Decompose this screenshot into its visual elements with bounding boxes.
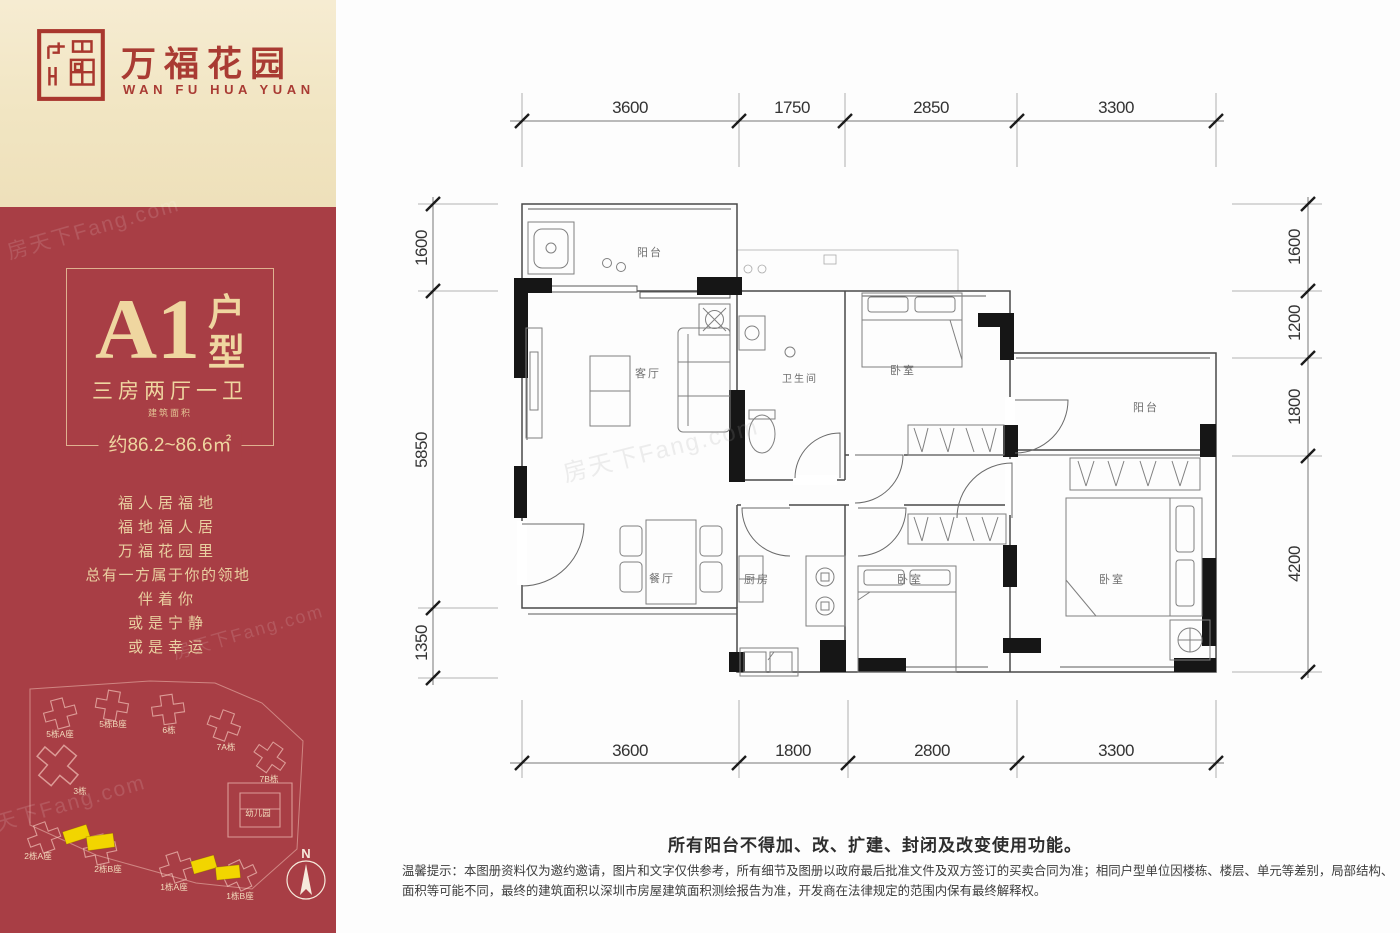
svg-text:2850: 2850 [913,98,949,117]
doors [522,400,1068,586]
brand-header: 万福花园 WAN FU HUA YUAN [0,0,336,207]
unit-layout: 三房两厅一卫 [67,375,273,405]
area-label: 建筑面积 [67,406,273,419]
area-value: 约86.2~86.6㎡ [98,430,241,457]
svg-text:1800: 1800 [775,741,811,760]
room-label-living: 客厅 [635,366,661,380]
washing-machine [528,222,574,274]
svg-text:3600: 3600 [612,98,648,117]
poem-line: 伴着你 [0,588,336,612]
balcony-notice: 所有阳台不得加、改、扩建、封闭及改变使用功能。 [400,831,1350,856]
poem-line: 福地福人居 [0,516,336,540]
disclaimer-text: 温馨提示：本图册资料仅为邀约邀请，图片和文字仅供参考，所有细节及图册以政府最后批… [402,862,1394,901]
brand-seal-icon [36,26,108,104]
bed-master [1066,498,1202,616]
sofa [678,328,730,432]
svg-text:1750: 1750 [774,98,810,117]
brand-name-en: WAN FU HUA YUAN [123,82,315,97]
site-buildings [24,688,292,895]
svg-text:幼儿园: 幼儿园 [245,808,271,818]
walls [522,204,1216,672]
wardrobe-master [1070,458,1200,490]
svg-text:4200: 4200 [1285,546,1304,582]
dimension-extension-lines [418,93,1322,778]
unit-type-box: A1 户 型 三房两厅一卫 建筑面积 约86.2~86.6㎡ [66,268,274,446]
svg-text:1350: 1350 [412,625,431,661]
svg-text:3栋: 3栋 [73,786,87,796]
unit-code: A1 [95,283,200,375]
svg-text:2栋B座: 2栋B座 [94,864,122,874]
svg-text:2800: 2800 [914,741,950,760]
unit-suffix: 户 型 [208,293,245,373]
unit-suffix-char-2: 型 [208,333,245,373]
svg-text:2栋A座: 2栋A座 [24,851,52,861]
svg-text:3300: 3300 [1098,741,1134,760]
svg-text:6栋: 6栋 [162,725,176,735]
room-label-kitchen: 厨房 [744,573,770,586]
room-label-dining: 餐厅 [649,571,675,585]
svg-text:5850: 5850 [412,432,431,468]
flyer-page: 万福花园 WAN FU HUA YUAN A1 户 型 三房两厅一卫 建筑面积 … [0,0,1400,933]
svg-text:5栋A座: 5栋A座 [46,729,74,739]
coffee-table [590,356,630,426]
tv-cabinet [526,328,542,438]
poem-line: 总有一方属于你的领地 [0,564,336,588]
compass-icon: N [287,846,325,899]
room-label-balcony-top: 阳台 [637,245,663,259]
dining-table [620,520,722,604]
structural-walls [514,277,1216,672]
wardrobe-top [908,425,1004,455]
bed-top [862,293,962,367]
svg-text:1栋B座: 1栋B座 [226,891,254,901]
svg-text:3600: 3600 [612,741,648,760]
svg-text:7A栋: 7A栋 [217,742,236,752]
poem-line: 或是宁静 [0,612,336,636]
floor-plan: 3600 1750 2850 3300 3600 1800 2800 3300 … [390,85,1400,795]
svg-text:3300: 3300 [1098,98,1134,117]
sidebar: 万福花园 WAN FU HUA YUAN A1 户 型 三房两厅一卫 建筑面积 … [0,0,336,933]
brand-name: 万福花园 [121,36,293,87]
room-label-bedroom-top: 卧室 [890,363,916,377]
room-label-bedroom-mid: 卧室 [897,572,923,586]
room-label-bathroom: 卫生间 [782,372,818,385]
windows [527,209,1216,667]
wardrobe-mid [908,514,1006,544]
unit-suffix-char-1: 户 [208,293,245,333]
svg-text:1栋A座: 1栋A座 [160,882,188,892]
poem-line: 或是幸运 [0,636,336,660]
ac-platform [737,250,958,291]
room-label-balcony-right: 阳台 [1133,400,1159,414]
svg-text:1600: 1600 [412,230,431,266]
svg-text:1800: 1800 [1285,389,1304,425]
sidebar-red-panel: A1 户 型 三房两厅一卫 建筑面积 约86.2~86.6㎡ 福人居福地 福地福… [0,207,336,933]
slogan-poem: 福人居福地 福地福人居 万福花园里 总有一方属于你的领地 伴着你 或是宁静 或是… [0,492,336,660]
vent-unit [699,304,730,335]
svg-text:7B栋: 7B栋 [260,774,279,784]
room-label-bedroom-master: 卧室 [1099,572,1125,586]
poem-line: 福人居福地 [0,492,336,516]
svg-text:N: N [301,846,310,861]
svg-text:1600: 1600 [1285,229,1304,265]
poem-line: 万福花园里 [0,540,336,564]
site-plan: 5栋A座 5栋B座 6栋 7A栋 7B栋 3栋 幼儿园 2栋A座 2栋B座 1栋… [0,677,336,933]
svg-text:5栋B座: 5栋B座 [99,719,127,729]
svg-text:1200: 1200 [1285,305,1304,341]
